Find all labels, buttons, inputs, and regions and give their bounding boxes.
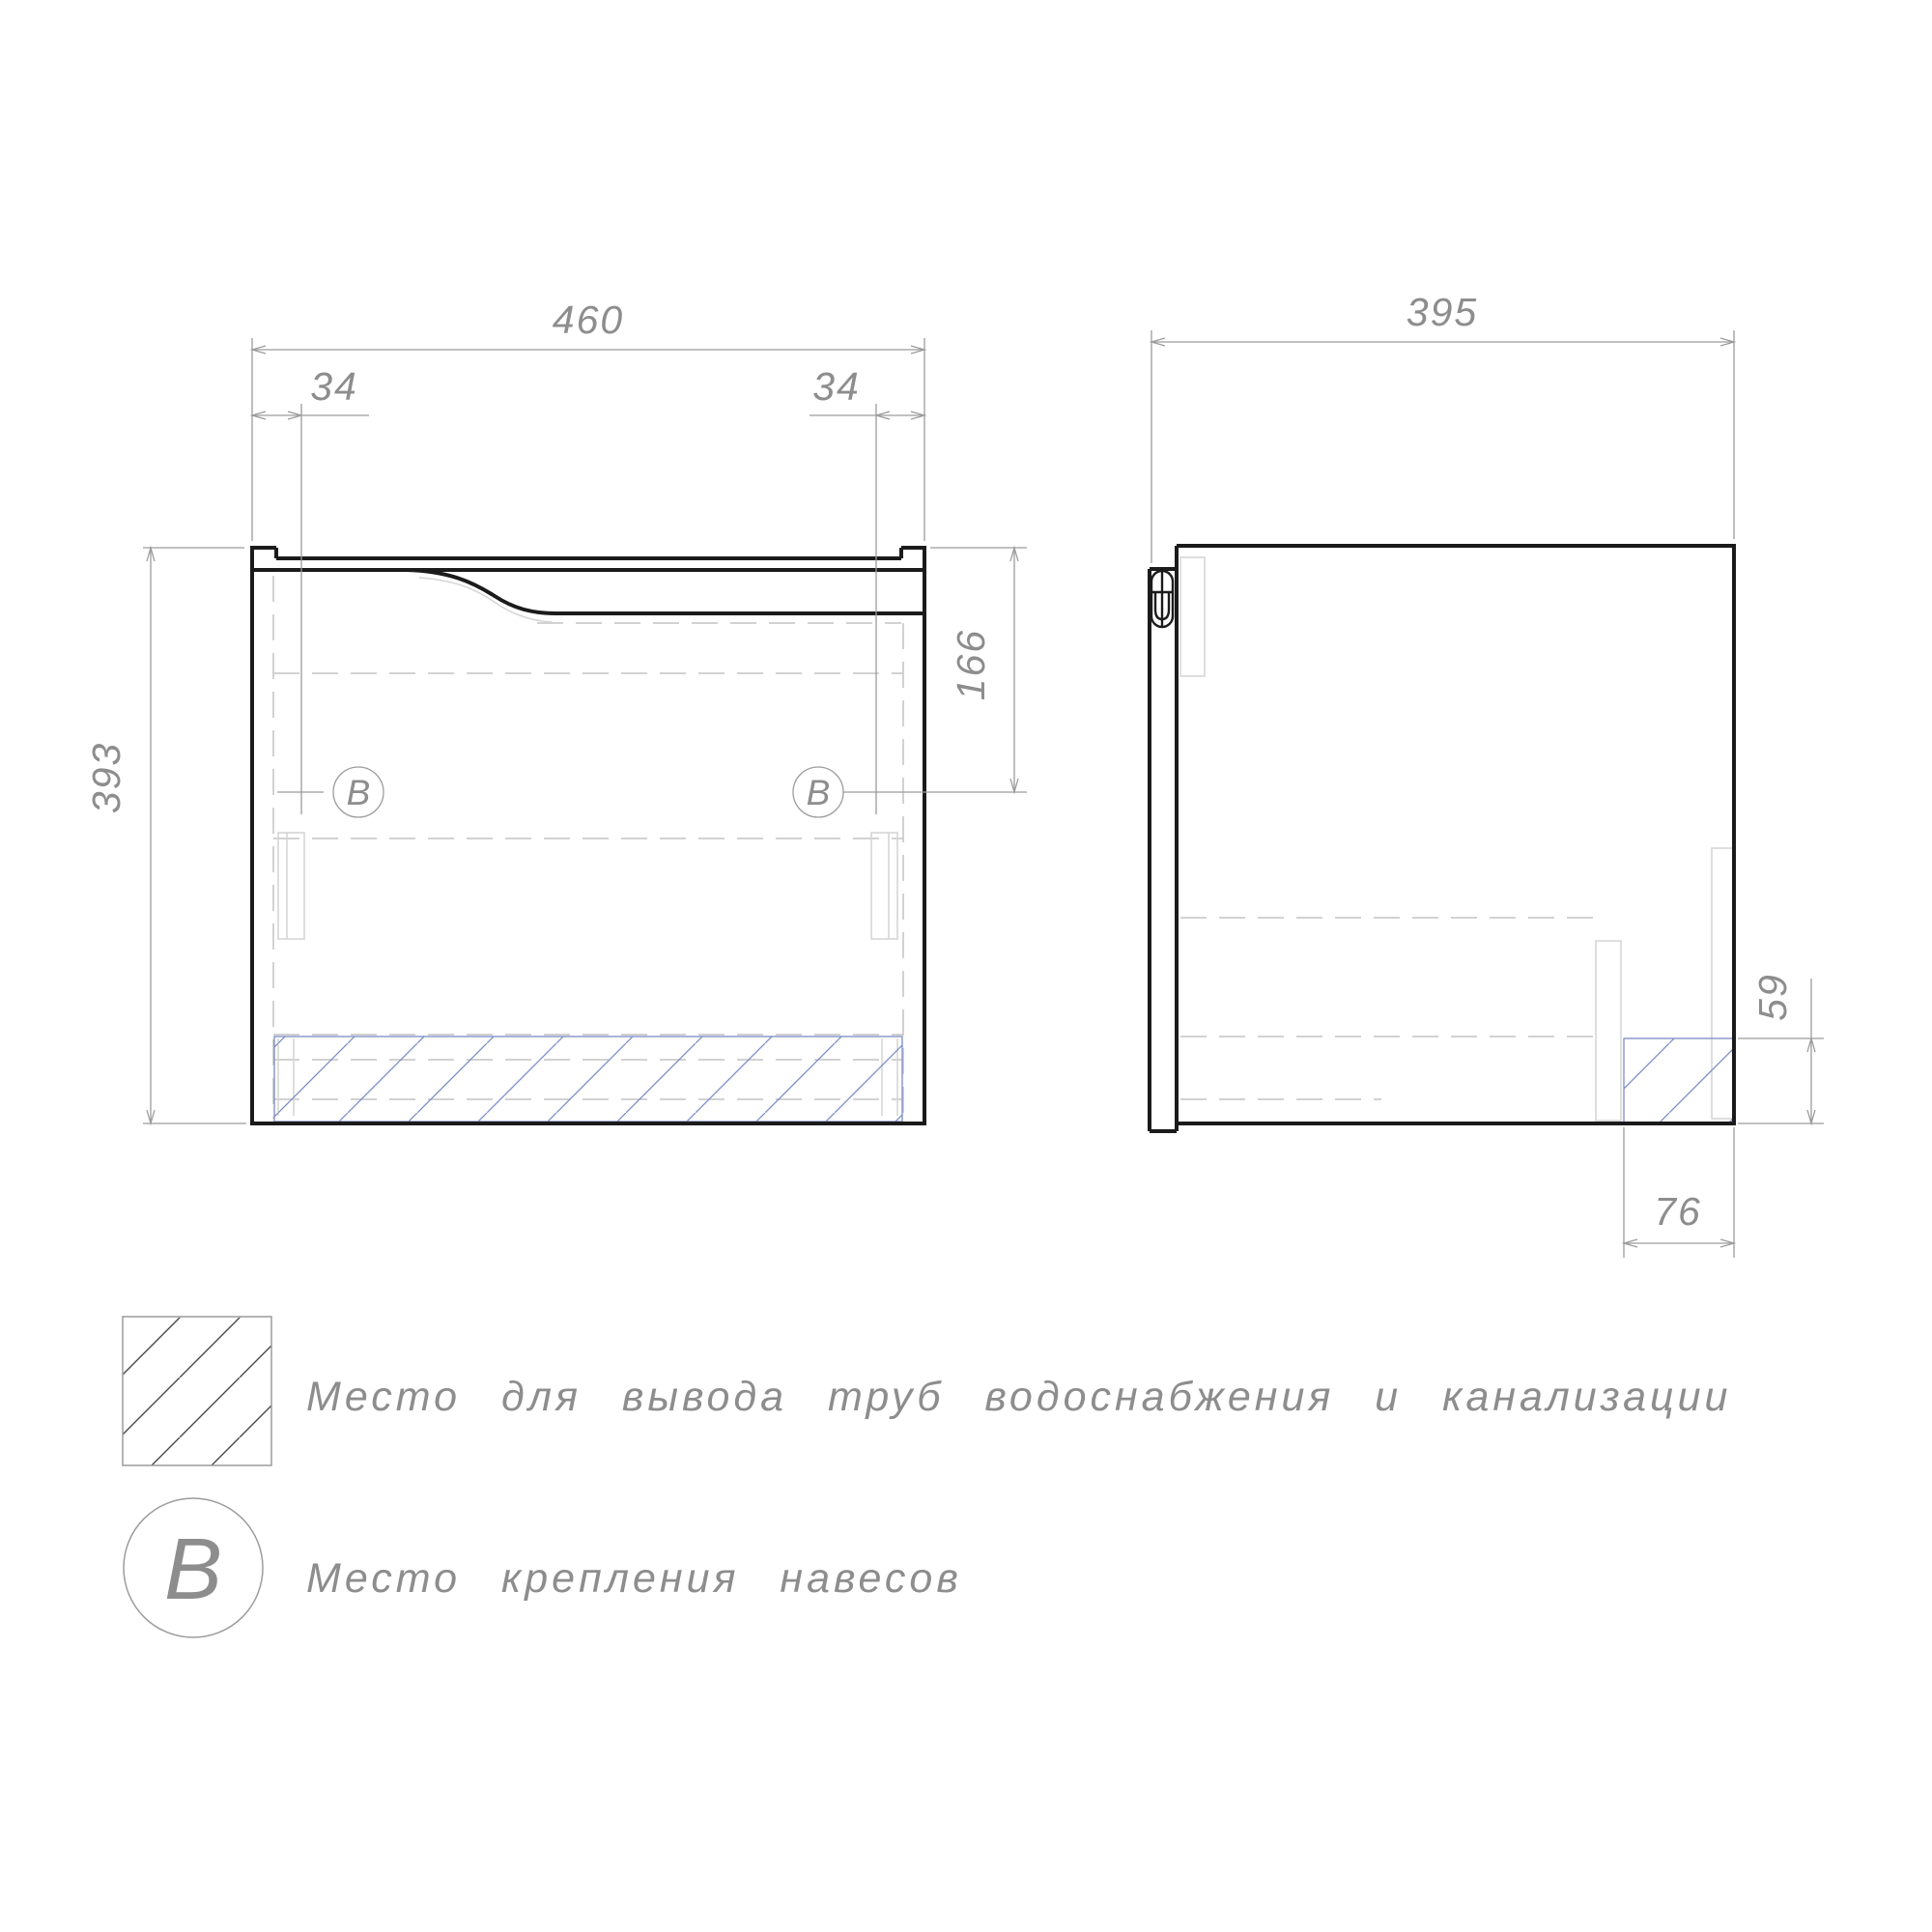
- basin-wave-shadow-line: [419, 578, 553, 622]
- door-hinge-detail: [1151, 571, 1173, 627]
- front-view: B B: [250, 548, 1027, 1123]
- side-view: [1150, 546, 1736, 1131]
- front-mount-marker-right: B: [793, 767, 1027, 817]
- drawing-page: B B 460 34: [0, 0, 1932, 1932]
- dim-mount-drop: 166: [930, 548, 1027, 792]
- dim-mount-offset-right: 34: [810, 364, 924, 814]
- side-pipe-zone-hatch: [1624, 1038, 1734, 1123]
- dim-front-height-label: 393: [84, 742, 128, 813]
- dim-mount-drop-label: 166: [949, 629, 993, 700]
- legend-mount-text: Место крепления навесов: [306, 1555, 962, 1602]
- front-dimensions: 460 34 34 393: [84, 298, 1027, 1123]
- front-hidden-bracket-left: [278, 833, 304, 939]
- dim-side-depth-label: 395: [1406, 290, 1478, 334]
- dim-front-width-label: 460: [553, 298, 624, 342]
- dim-front-width: 460: [252, 298, 924, 541]
- mount-marker-right-label: B: [807, 773, 831, 812]
- dim-cutout-height-label: 59: [1750, 973, 1795, 1021]
- legend-pipe-zone-text: Место для вывода труб водоснабжения и ка…: [306, 1374, 1731, 1420]
- side-hidden-lines: [1180, 557, 1734, 1121]
- side-hidden-hanger: [1180, 557, 1205, 676]
- dim-cutout-width: 76: [1624, 1127, 1734, 1258]
- mount-marker-left-label: B: [347, 773, 371, 812]
- technical-drawing: B B 460 34: [0, 0, 1932, 1932]
- dim-mount-offset-right-label: 34: [812, 364, 861, 409]
- dim-mount-offset-left: 34: [252, 364, 369, 814]
- legend-hatch-swatch: [123, 1317, 271, 1465]
- dim-mount-offset-left-label: 34: [310, 364, 358, 409]
- side-hidden-slide: [1596, 941, 1621, 1121]
- front-mount-marker-left: B: [277, 767, 384, 817]
- dim-cutout-height: 59: [1738, 973, 1824, 1123]
- dim-side-depth: 395: [1151, 290, 1734, 563]
- dim-cutout-width-label: 76: [1654, 1189, 1702, 1234]
- legend-mount-symbol: B: [164, 1521, 222, 1618]
- front-pipe-zone-hatch: [274, 1037, 902, 1122]
- legend-pipe-zone-row: Место для вывода труб водоснабжения и ка…: [123, 1317, 1731, 1465]
- legend: Место для вывода труб водоснабжения и ка…: [123, 1317, 1731, 1637]
- basin-wave-profile: [406, 570, 924, 613]
- front-hidden-bracket-right: [871, 833, 897, 939]
- legend-mount-row: B Место крепления навесов: [124, 1498, 962, 1637]
- dim-front-height: 393: [84, 548, 246, 1123]
